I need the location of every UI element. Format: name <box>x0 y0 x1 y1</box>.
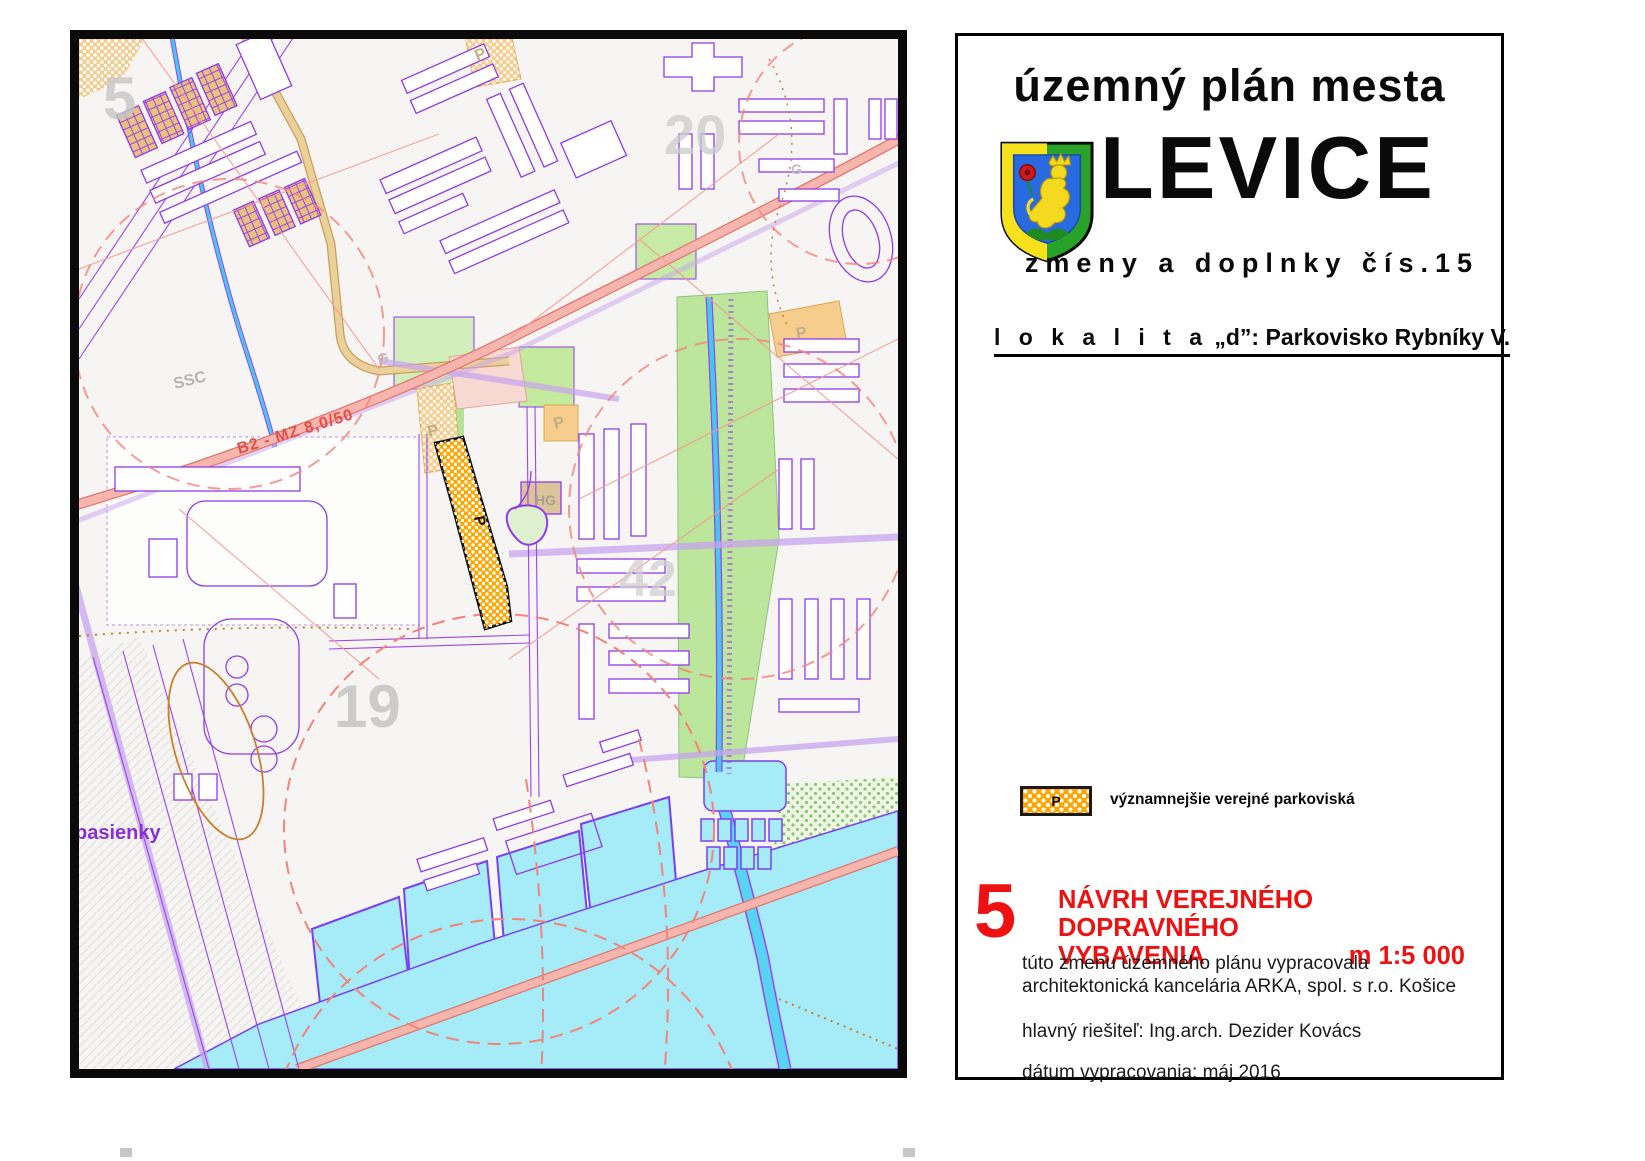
map-label-zone-42: 42 <box>619 550 677 608</box>
author-line2: architektonická kancelária ARKA, spol. s… <box>1022 975 1456 998</box>
map-label-zone-20: 20 <box>664 103 726 166</box>
map-label-zone-19: 19 <box>334 673 401 740</box>
plan-type-title: územný plán mesta <box>958 60 1501 112</box>
city-plan-map: 5201942SSCHGpasienkyPPPPGGB2 - MZ 8,0/50… <box>79 39 898 1069</box>
chief-designer: hlavný riešiteľ: Ing.arch. Dezider Kovác… <box>1022 1021 1361 1043</box>
map-label-zone-5: 5 <box>103 65 136 132</box>
map-label-garage-g-2: G <box>791 161 802 177</box>
locality-line: l o k a l i t a „d”: Parkovisko Rybníky … <box>994 324 1510 357</box>
map-frame: 5201942SSCHGpasienkyPPPPGGB2 - MZ 8,0/50… <box>70 30 907 1078</box>
date-line: dátum vypracovania: máj 2016 <box>1022 1062 1281 1084</box>
locality-prefix: l o k a l i t a <box>994 324 1208 350</box>
plan-sheet: 5201942SSCHGpasienkyPPPPGGB2 - MZ 8,0/50… <box>0 0 1645 1161</box>
amendment-subtitle: zmeny a doplnky čís.15 <box>1025 248 1479 279</box>
parking-legend-label: významnejšie verejné parkoviská <box>1110 791 1355 809</box>
locality-code: „d”: <box>1214 324 1259 350</box>
sheet-number: 5 <box>974 878 1016 946</box>
map-label-label-pasienky: pasienky <box>79 822 161 844</box>
crop-mark-left <box>120 1148 132 1157</box>
map-label-label-hg: HG <box>535 492 556 508</box>
author-line1: túto zmenu územného plánu vypracovala <box>1022 952 1456 975</box>
crop-mark-right <box>903 1148 915 1157</box>
title-block-panel: územný plán mesta LEVICE zmeny a doplnky… <box>955 33 1504 1080</box>
sheet-title-line1: NÁVRH VEREJNÉHO DOPRAVNÉHO <box>1058 886 1465 942</box>
city-name: LEVICE <box>1100 124 1436 212</box>
parking-symbol: P <box>1051 793 1060 809</box>
locality-name: Parkovisko Rybníky V. <box>1265 324 1510 350</box>
levice-coat-of-arms <box>998 138 1096 266</box>
parking-legend-swatch: P <box>1020 786 1092 816</box>
author-block: túto zmenu územného plánu vypracovala ar… <box>1022 952 1456 998</box>
